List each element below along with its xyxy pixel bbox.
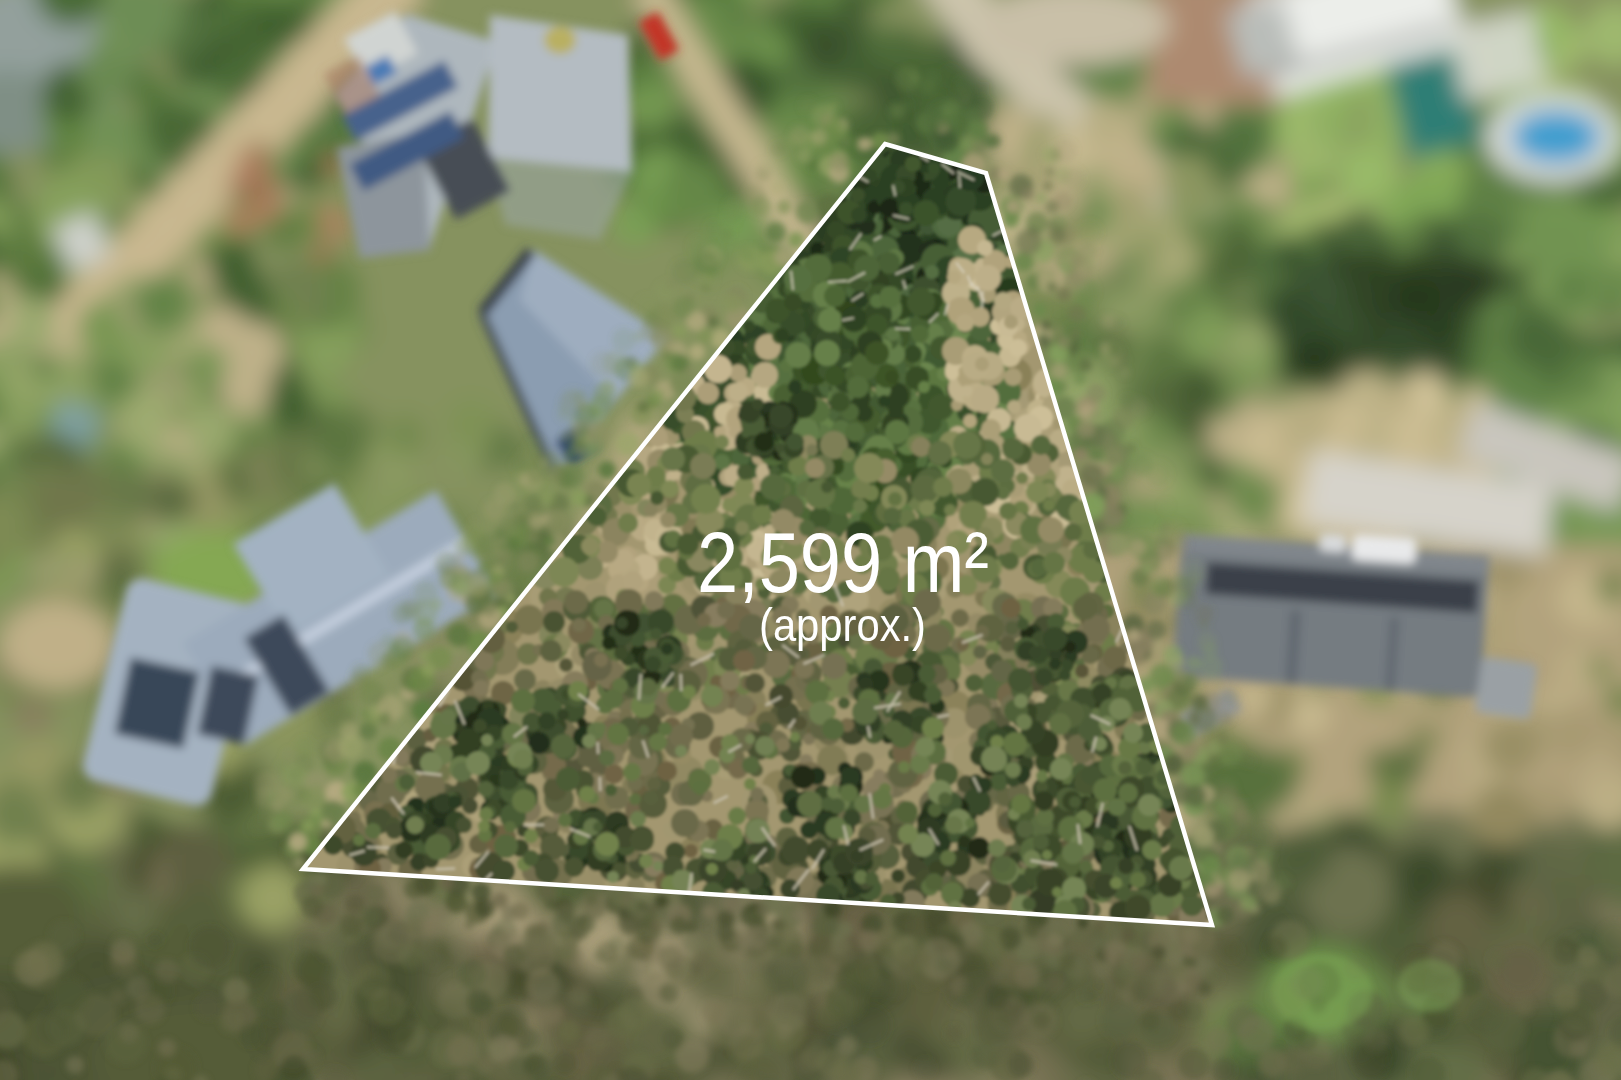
svg-text:2,599 m²: 2,599 m² xyxy=(697,514,989,610)
svg-text:(approx.): (approx.) xyxy=(759,599,926,651)
